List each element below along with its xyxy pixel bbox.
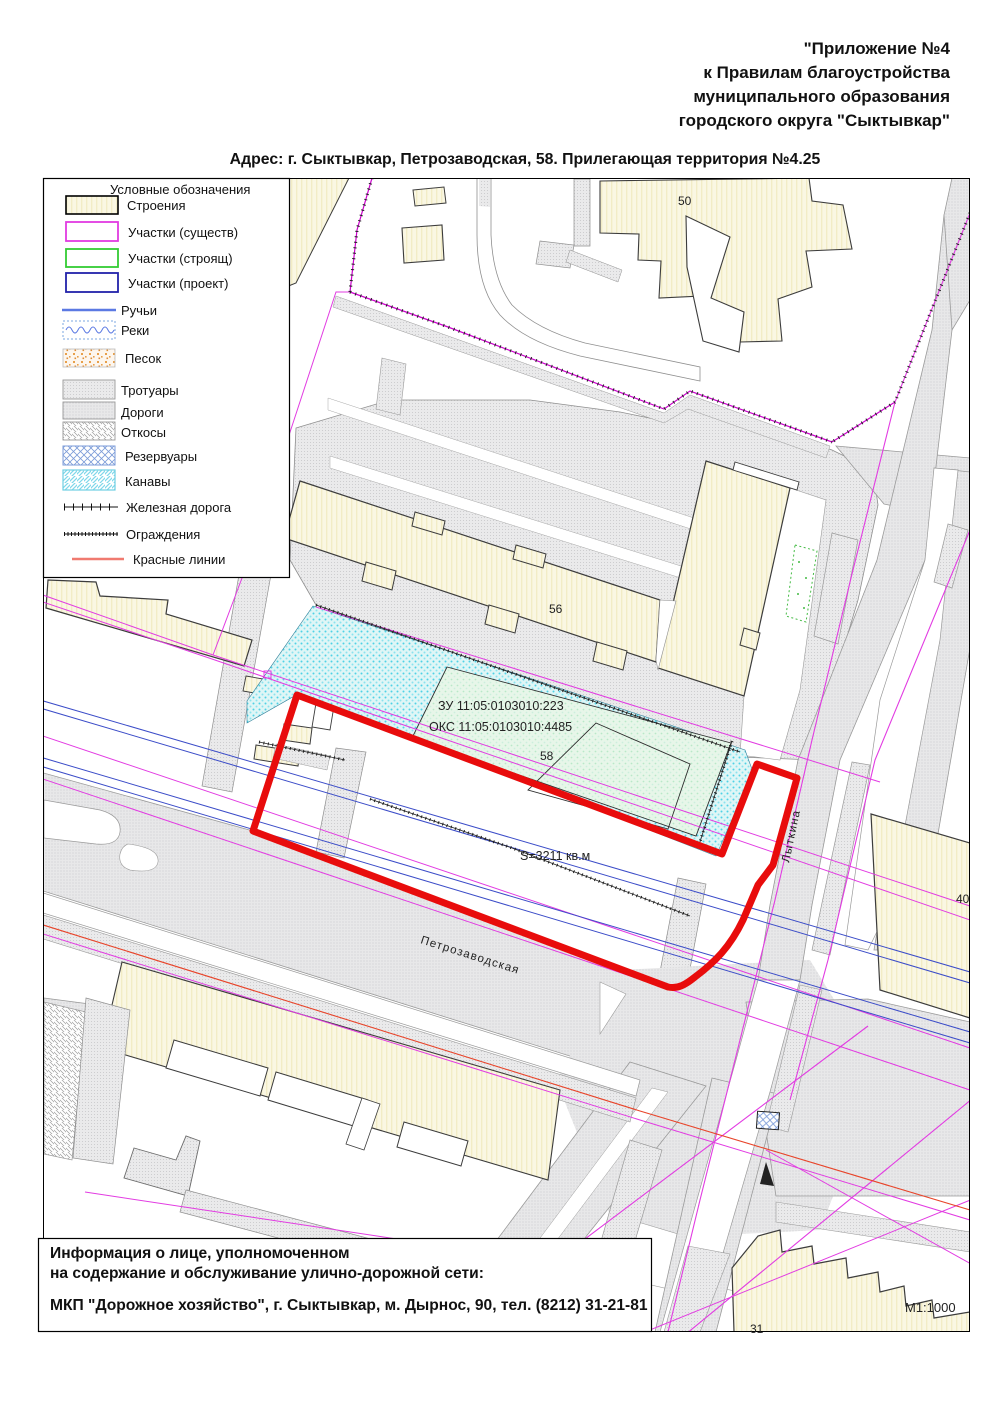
svg-text:ЗУ 11:05:0103010:223: ЗУ 11:05:0103010:223	[438, 699, 564, 713]
svg-text:58: 58	[540, 749, 554, 763]
svg-text:Дороги: Дороги	[121, 405, 164, 420]
svg-text:муниципального образования: муниципального образования	[693, 87, 950, 106]
svg-text:S=3211 кв.м: S=3211 кв.м	[520, 849, 590, 863]
svg-text:Ограждения: Ограждения	[126, 527, 200, 542]
svg-text:Резервуары: Резервуары	[125, 449, 197, 464]
svg-text:Красные линии: Красные линии	[133, 552, 225, 567]
svg-text:"Приложение №4: "Приложение №4	[804, 39, 951, 58]
svg-text:Условные обозначения: Условные обозначения	[110, 182, 250, 197]
svg-text:Тротуары: Тротуары	[121, 383, 179, 398]
svg-text:Реки: Реки	[121, 323, 149, 338]
svg-text:50: 50	[678, 194, 692, 208]
svg-text:Ручьи: Ручьи	[121, 303, 157, 318]
svg-text:к Правилам благоустройства: к Правилам благоустройства	[703, 63, 950, 82]
svg-text:Железная дорога: Железная дорога	[126, 500, 232, 515]
svg-text:31: 31	[750, 1322, 764, 1336]
svg-text:40: 40	[956, 892, 970, 906]
svg-text:Информация о лице, уполномочен: Информация о лице, уполномоченном	[50, 1245, 350, 1262]
svg-text:Откосы: Откосы	[121, 425, 166, 440]
svg-text:Участки (строящ): Участки (строящ)	[128, 251, 233, 266]
svg-text:городского округа "Сыктывкар": городского округа "Сыктывкар"	[679, 111, 950, 130]
svg-text:ОКС 11:05:0103010:4485: ОКС 11:05:0103010:4485	[429, 720, 572, 734]
svg-text:на содержание и обслуживание у: на содержание и обслуживание улично-доро…	[50, 1265, 484, 1282]
svg-text:Канавы: Канавы	[125, 474, 170, 489]
svg-text:Песок: Песок	[125, 351, 161, 366]
svg-text:56: 56	[549, 602, 563, 616]
svg-text:Участки (существ): Участки (существ)	[128, 225, 238, 240]
svg-text:МКП "Дорожное хозяйство", г. С: МКП "Дорожное хозяйство", г. Сыктывкар, …	[50, 1297, 648, 1314]
svg-text:М1:1000: М1:1000	[905, 1300, 956, 1315]
svg-text:Адрес: г. Сыктывкар, Петрозаво: Адрес: г. Сыктывкар, Петрозаводская, 58.…	[230, 151, 821, 168]
svg-text:Участки (проект): Участки (проект)	[128, 276, 228, 291]
svg-text:Строения: Строения	[127, 198, 186, 213]
